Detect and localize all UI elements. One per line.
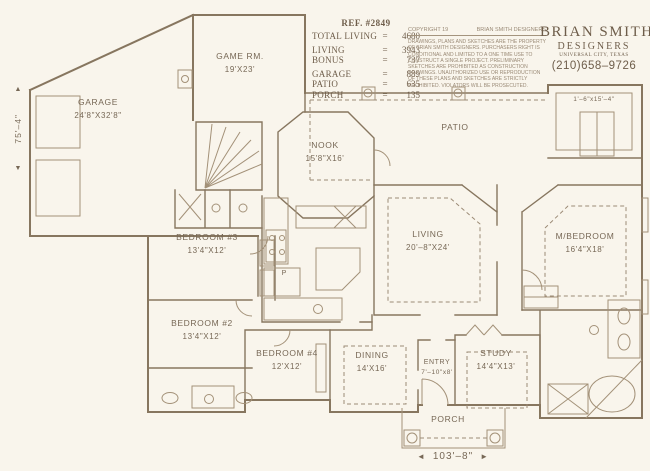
toilet-icon xyxy=(205,395,214,404)
room-label-nook: NOOK 15'8"X16' xyxy=(267,139,383,165)
stat-row: BONUS = 737 xyxy=(312,55,420,66)
room-label-living: LIVING 20'–8"X24' xyxy=(370,228,486,254)
stat-row: PATIO = 635 xyxy=(312,79,420,90)
kitchen-island xyxy=(316,248,360,290)
firm-city: UNIVERSAL CITY, TEXAS xyxy=(540,53,648,58)
firm-subtitle: DESIGNERS xyxy=(540,41,648,52)
pantry-label: P xyxy=(277,270,291,277)
front-door-swing xyxy=(422,379,448,405)
fixtures xyxy=(36,70,648,448)
room-label-master: M/BEDROOM 16'4"X18' xyxy=(527,230,643,256)
left-dimension: ▲ 75'–4" ▼ xyxy=(6,86,30,172)
porch-column-icon xyxy=(407,433,417,443)
stat-row: PORCH = 135 xyxy=(312,90,420,101)
left-dimension-text: 75'–4" xyxy=(13,114,23,144)
garden-tub-icon xyxy=(589,376,635,412)
french-door-icon xyxy=(466,325,502,335)
room-label-porch: PORCH xyxy=(390,413,506,426)
scanned-floor-plan-page: REF. #2849 TOTAL LIVING = 4680 LIVING = … xyxy=(0,0,650,471)
stat-row: LIVING = 3943 xyxy=(312,45,420,56)
room-label-patio: PATIO xyxy=(397,121,513,134)
room-label-bed3: BEDROOM #3 13'4"X12' xyxy=(149,231,265,257)
copyright-heading: COPYRIGHT 19 BRIAN SMITH DESIGNERS xyxy=(408,27,546,36)
designer-logo-block: BRIAN SMITH DESIGNERS UNIVERSAL CITY, TE… xyxy=(540,24,648,72)
bottom-dimension-text: 103'–8" xyxy=(433,451,473,462)
plan-reference: REF. #2849 xyxy=(312,18,420,28)
dimension-arrow-up-icon: ▲ xyxy=(15,86,22,93)
dimension-arrow-left-icon: ◄ xyxy=(417,452,426,461)
kitchen-counter xyxy=(264,198,288,264)
door-swing xyxy=(522,270,542,290)
porch-column-icon xyxy=(490,433,500,443)
dimension-arrow-down-icon: ▼ xyxy=(15,165,22,172)
room-label-fireplace-bay: 1'–6"x15'–4" xyxy=(546,96,642,104)
sink-icon xyxy=(314,305,323,314)
master-vanity xyxy=(608,300,640,358)
bottom-dimension: ◄ 103'–8" ► xyxy=(388,451,518,462)
area-statistics: REF. #2849 TOTAL LIVING = 4680 LIVING = … xyxy=(312,18,420,100)
firm-name: BRIAN SMITH xyxy=(540,24,648,41)
room-label-study: STUDY 14'4"X13' xyxy=(438,347,554,373)
stairs-icon xyxy=(205,124,262,188)
door-swing xyxy=(236,300,252,316)
room-label-garage: GARAGE 24'8"X32'8" xyxy=(40,96,156,122)
door-swing xyxy=(274,330,290,346)
firm-phone: (210)658–9726 xyxy=(540,60,648,72)
stove-icon xyxy=(266,230,286,262)
dimension-arrow-right-icon: ► xyxy=(480,452,489,461)
room-label-game: GAME RM. 19'X23' xyxy=(182,50,298,76)
stat-row: TOTAL LIVING = 4680 xyxy=(312,31,420,42)
stat-row: GARAGE = 889 xyxy=(312,69,420,80)
room-label-bed2: BEDROOM #2 13'4"X12' xyxy=(144,317,260,343)
copyright-notice: COPYRIGHT 19 BRIAN SMITH DESIGNERS DRAWI… xyxy=(408,27,546,89)
copyright-body: DRAWINGS, PLANS AND SKETCHES ARE THE PRO… xyxy=(408,39,546,89)
